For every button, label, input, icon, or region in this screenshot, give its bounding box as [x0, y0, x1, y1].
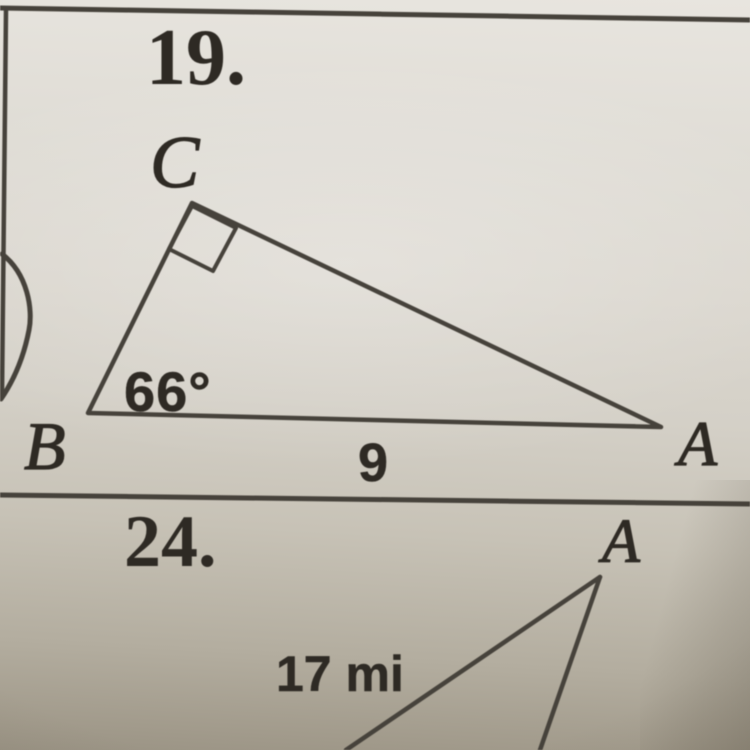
- side-17mi-label: 17 mi: [276, 646, 404, 702]
- top-border-line: [0, 8, 750, 20]
- worksheet-photo: 19. C 66° B 9 A 24. A 17 mi: [0, 0, 750, 750]
- left-border-line: [2, 10, 6, 396]
- vertex-a-label: A: [674, 408, 718, 479]
- problem-19-number: 19.: [146, 14, 246, 102]
- vertex-c-label: C: [150, 122, 201, 204]
- vertex-b-label: B: [24, 408, 66, 484]
- angle-66-label: 66°: [124, 360, 212, 423]
- problem-24-number: 24.: [124, 501, 217, 583]
- row-divider-line: [0, 495, 750, 504]
- side-9-label: 9: [358, 433, 388, 493]
- right-angle-marker: [169, 206, 236, 271]
- worksheet-figure: 19. C 66° B 9 A 24. A 17 mi: [0, 0, 750, 750]
- vertex-a24-label: A: [598, 508, 641, 576]
- triangle-24-right-side: [540, 577, 600, 750]
